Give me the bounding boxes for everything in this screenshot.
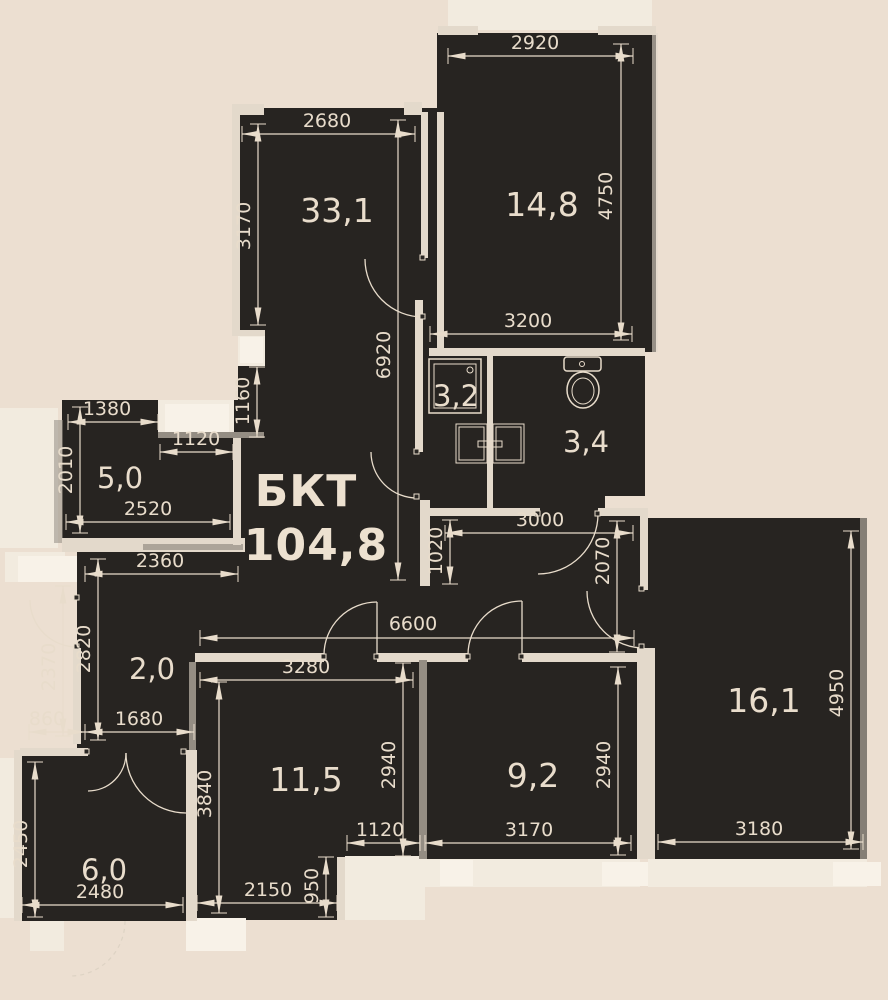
- dimension-label: 1120: [172, 428, 220, 450]
- dimension-label: 2820: [73, 625, 95, 673]
- room-area-label: 9,2: [507, 756, 559, 795]
- dimension-label: 3180: [735, 818, 783, 840]
- dimension-label: 3200: [504, 310, 552, 332]
- dimension-label: 2360: [136, 550, 184, 572]
- room-area-label: 16,1: [727, 681, 800, 720]
- floor-plan-canvas: 2920 4750 2680 3170 3200 6920 1160 1380 …: [0, 0, 888, 1000]
- dimension-label: 3000: [516, 509, 564, 531]
- apartment-total-area: 104,8: [244, 520, 388, 571]
- dimension-label: 1680: [115, 708, 163, 730]
- dimension-label: 2520: [124, 498, 172, 520]
- dimension-label: 4750: [595, 172, 617, 220]
- dimension-label: 1160: [232, 377, 254, 425]
- dimension-label: 3170: [233, 202, 255, 250]
- dimension-label: 950: [301, 868, 323, 904]
- dimension-label: 3170: [505, 819, 553, 841]
- room-area-label: 2,0: [129, 652, 175, 686]
- dimension-label: 2920: [511, 32, 559, 54]
- room-area-label: 33,1: [300, 191, 373, 230]
- room-area-label: 3,2: [433, 379, 479, 413]
- dimension-label: 1020: [425, 527, 447, 575]
- dimension-label: 2070: [592, 537, 614, 585]
- dimension-label: 2370: [38, 643, 60, 691]
- dimension-label: 6600: [389, 613, 437, 635]
- apartment-type-label: БКТ: [255, 466, 358, 517]
- room-area-label: 3,4: [563, 425, 609, 459]
- dimension-label: 2940: [593, 741, 615, 789]
- room-area-label: 6,0: [81, 853, 127, 887]
- dimension-label: 1380: [83, 398, 131, 420]
- dimension-label: 3280: [282, 656, 330, 678]
- dimension-label: 4950: [826, 669, 848, 717]
- dimension-label: 6920: [373, 331, 395, 379]
- dimension-label: 3840: [194, 770, 216, 818]
- dimension-label: 2010: [55, 446, 77, 494]
- floor-plan-page: 2920 4750 2680 3170 3200 6920 1160 1380 …: [0, 0, 888, 1000]
- dimension-label: 2680: [303, 110, 351, 132]
- dimension-label: 860: [29, 708, 65, 730]
- room-area-label: 11,5: [269, 760, 342, 799]
- dimension-label: 1120: [356, 819, 404, 841]
- dimension-label: 2940: [378, 741, 400, 789]
- dimension-label: 2150: [244, 879, 292, 901]
- room-area-label: 14,8: [505, 185, 578, 224]
- dimension-label: 2450: [10, 820, 32, 868]
- room-area-label: 5,0: [97, 461, 143, 495]
